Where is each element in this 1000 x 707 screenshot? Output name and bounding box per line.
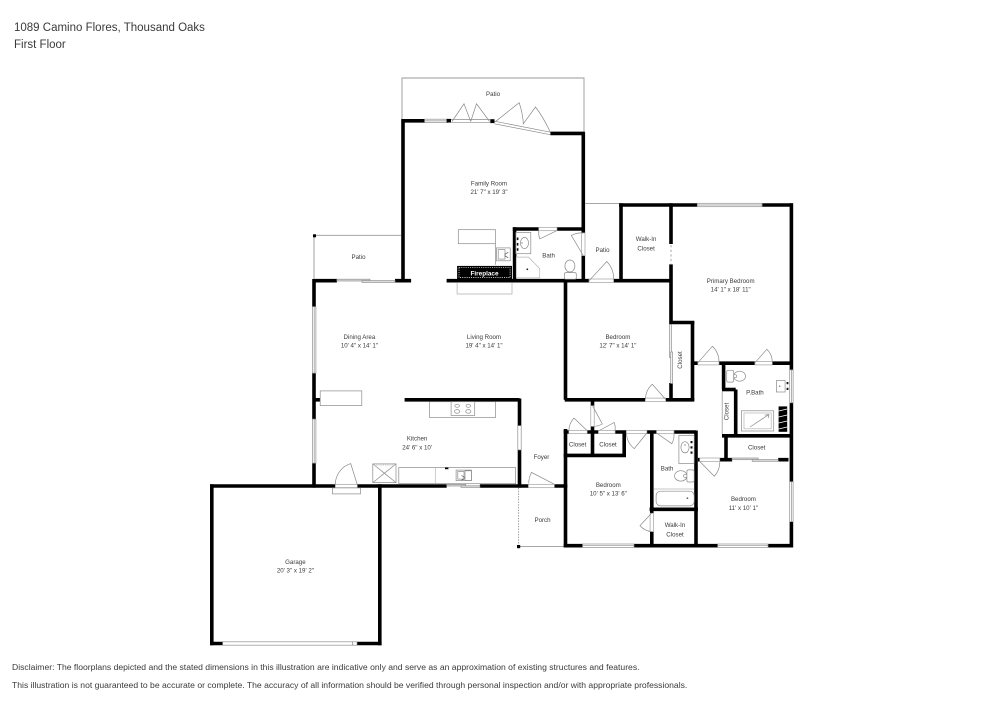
svg-text:Patio: Patio: [352, 254, 367, 261]
svg-text:21' 7" x 19' 3": 21' 7" x 19' 3": [470, 189, 507, 196]
svg-text:Primary Bedroom: Primary Bedroom: [707, 278, 755, 285]
svg-text:24' 6" x 10': 24' 6" x 10': [402, 445, 432, 452]
svg-text:Closet: Closet: [569, 441, 587, 448]
svg-text:First Floor: First Floor: [14, 39, 66, 51]
svg-text:Garage: Garage: [285, 559, 306, 566]
svg-text:Walk-In: Walk-In: [636, 236, 657, 243]
svg-text:This illustration is not guara: This illustration is not guaranteed to b…: [12, 680, 687, 690]
svg-text:Closet: Closet: [599, 441, 617, 448]
svg-text:Bedroom: Bedroom: [605, 334, 630, 341]
svg-text:Closet: Closet: [666, 532, 684, 539]
svg-text:Foyer: Foyer: [534, 454, 550, 461]
svg-text:Closet: Closet: [724, 403, 731, 421]
svg-text:12' 7" x 14' 1": 12' 7" x 14' 1": [599, 343, 636, 350]
svg-text:Living Room: Living Room: [467, 334, 501, 341]
svg-text:1089 Camino Flores, Thousand O: 1089 Camino Flores, Thousand Oaks: [14, 22, 205, 34]
svg-text:Patio: Patio: [596, 247, 611, 254]
svg-text:11' x 10' 1": 11' x 10' 1": [729, 505, 758, 512]
svg-text:Bedroom: Bedroom: [731, 496, 756, 503]
svg-text:Closet: Closet: [677, 351, 684, 369]
svg-text:Family Room: Family Room: [471, 181, 507, 188]
svg-text:Closet: Closet: [748, 445, 766, 452]
svg-text:Walk-In: Walk-In: [665, 522, 686, 529]
svg-text:19' 4" x 14' 1": 19' 4" x 14' 1": [465, 343, 502, 350]
svg-text:14' 1" x 18' 11": 14' 1" x 18' 11": [711, 287, 751, 294]
svg-text:Bath: Bath: [661, 466, 674, 473]
svg-text:Fireplace: Fireplace: [470, 270, 499, 277]
svg-text:10' 5" x 13' 6": 10' 5" x 13' 6": [590, 491, 627, 498]
svg-text:Disclaimer: The floorplans dep: Disclaimer: The floorplans depicted and …: [12, 662, 640, 672]
svg-text:20' 3" x 19' 2": 20' 3" x 19' 2": [277, 568, 314, 575]
svg-text:Bedroom: Bedroom: [596, 482, 621, 489]
svg-text:Porch: Porch: [534, 517, 551, 524]
svg-text:Kitchen: Kitchen: [407, 436, 428, 443]
svg-text:Closet: Closet: [637, 246, 655, 253]
svg-text:10' 4" x 14' 1": 10' 4" x 14' 1": [341, 343, 378, 350]
svg-text:P.Bath: P.Bath: [746, 389, 764, 396]
svg-text:Dining Area: Dining Area: [344, 334, 376, 341]
svg-text:Bath: Bath: [542, 253, 555, 260]
svg-text:Patio: Patio: [486, 91, 501, 98]
